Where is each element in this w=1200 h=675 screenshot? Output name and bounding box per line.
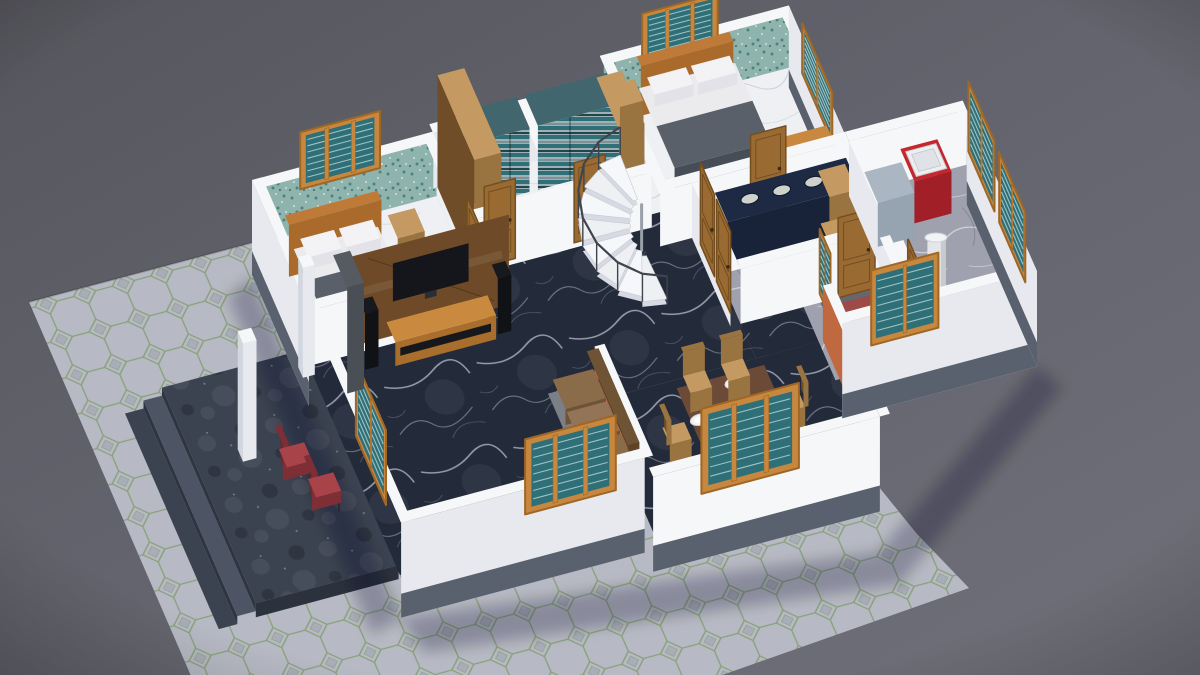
- window-mullion: [370, 398, 372, 469]
- pillar-west: [238, 331, 243, 461]
- window-mullion: [732, 404, 737, 482]
- window-mullion: [665, 9, 669, 55]
- window-mullion: [325, 128, 329, 180]
- speaker-right-front: [498, 275, 511, 335]
- bed2-side-table-front: [620, 101, 644, 137]
- window-mullion: [903, 265, 906, 333]
- window-mullion: [764, 395, 769, 473]
- pillar-west: [298, 257, 303, 378]
- pillar-front: [303, 265, 315, 378]
- door-knob: [778, 167, 782, 171]
- door-knob: [726, 265, 730, 269]
- door-knob: [867, 248, 871, 252]
- window-mullion: [817, 59, 819, 108]
- window-mullion: [583, 426, 588, 495]
- door-knob: [710, 228, 714, 232]
- pillar-front: [243, 340, 257, 462]
- isometric-house-scene: [0, 0, 1200, 675]
- dining-chair-back-front: [666, 420, 671, 445]
- window-mullion: [1012, 184, 1013, 250]
- speaker-left-front: [365, 310, 379, 370]
- dining-chair-back-front: [804, 382, 809, 407]
- window-mullion: [553, 435, 558, 504]
- window-mullion: [351, 120, 355, 172]
- floorplan-render: [0, 0, 1200, 675]
- window-mullion: [981, 114, 982, 180]
- window-mullion: [691, 2, 695, 48]
- feature-slab-front: [347, 283, 364, 394]
- water-heater-top: [925, 233, 947, 242]
